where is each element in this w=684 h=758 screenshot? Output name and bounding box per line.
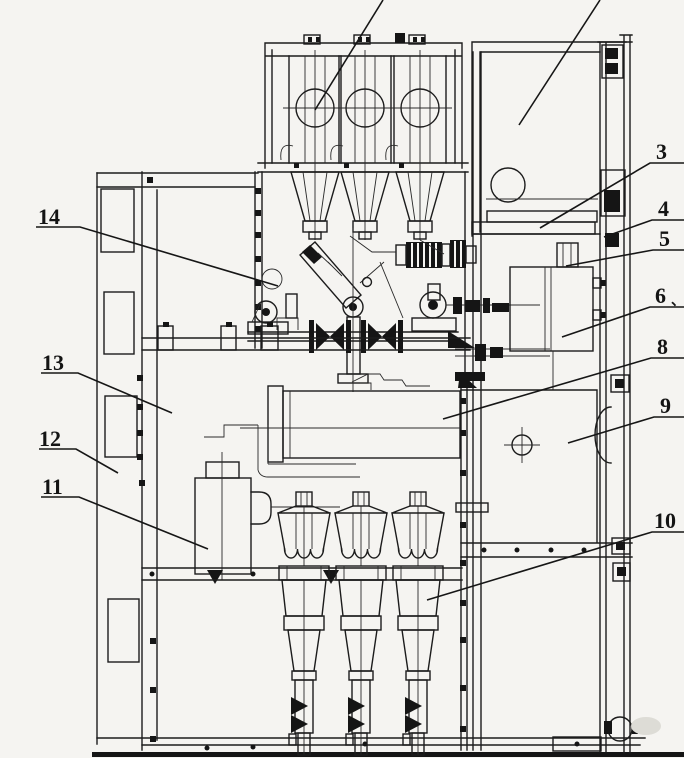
leader-offscreen-1 (315, 0, 383, 110)
callout-label-10: 10 (654, 508, 676, 533)
switchgear-sectional-drawing: 3 4 5 6 、 8 9 10 11 12 13 14 (0, 0, 684, 758)
callout-label-12: 12 (39, 426, 61, 451)
operating-mechanism (248, 228, 550, 392)
callout-label-13: 13 (42, 350, 64, 375)
callout-label-4: 4 (658, 196, 669, 221)
callout-label-8: 8 (657, 334, 668, 359)
callout-label-14: 14 (38, 204, 60, 229)
auxiliary-box (510, 243, 606, 390)
busbar-compartment (258, 33, 468, 240)
leader-5 (566, 250, 684, 266)
leader-13 (41, 373, 172, 413)
callout-label-9: 9 (660, 393, 671, 418)
leader-offscreen-2 (519, 0, 600, 125)
leader-11 (41, 497, 208, 549)
spring-tank (195, 452, 340, 580)
cable-termination-phase-c (392, 492, 444, 755)
cable-compartment (142, 492, 462, 755)
top-right-compartment (472, 42, 626, 236)
leader-8 (443, 358, 684, 419)
scan-artifact (631, 717, 661, 735)
bushing-ct-phase-a (281, 35, 341, 240)
cable-termination-phase-b (335, 492, 387, 755)
callout-label-3: 3 (656, 139, 667, 164)
breaker-pole (240, 374, 460, 462)
callout-label-6-suffix: 、 (671, 294, 684, 309)
wall-bolts (255, 188, 261, 332)
leader-6 (562, 307, 684, 337)
cabinet-frame (92, 172, 684, 757)
gauge-hole (491, 168, 525, 202)
floor-base-strip (92, 752, 684, 757)
bushing-ct-phase-c (386, 35, 446, 240)
leader-12 (39, 449, 118, 473)
crosshair-mark (504, 427, 540, 463)
lower-compartment (142, 322, 470, 584)
callout-label-11: 11 (42, 474, 63, 499)
leader-9 (568, 417, 684, 443)
cable-termination-phase-a (278, 492, 330, 755)
right-door (553, 35, 661, 753)
diagram-canvas: 3 4 5 6 、 8 9 10 11 12 13 14 (0, 0, 684, 758)
callout-label-5: 5 (659, 226, 670, 251)
callout-label-6: 6 (655, 283, 666, 308)
bushing-ct-phase-b (331, 35, 391, 240)
